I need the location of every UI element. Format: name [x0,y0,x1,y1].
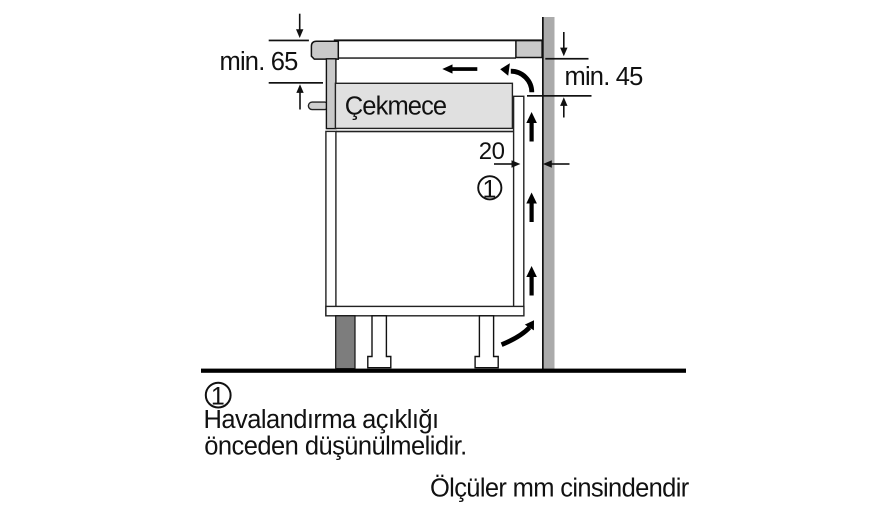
svg-text:20: 20 [479,138,505,165]
svg-text:Ölçüler mm cinsindendir: Ölçüler mm cinsindendir [430,475,690,503]
svg-text:Çekmece: Çekmece [345,93,447,121]
svg-text:min. 65: min. 65 [220,48,299,76]
svg-text:Havalandırma açıklığı: Havalandırma açıklığı [204,406,439,434]
svg-text:1: 1 [482,176,496,204]
svg-text:min. 45: min. 45 [565,63,644,91]
svg-text:önceden düşünülmelidir.: önceden düşünülmelidir. [204,432,466,460]
